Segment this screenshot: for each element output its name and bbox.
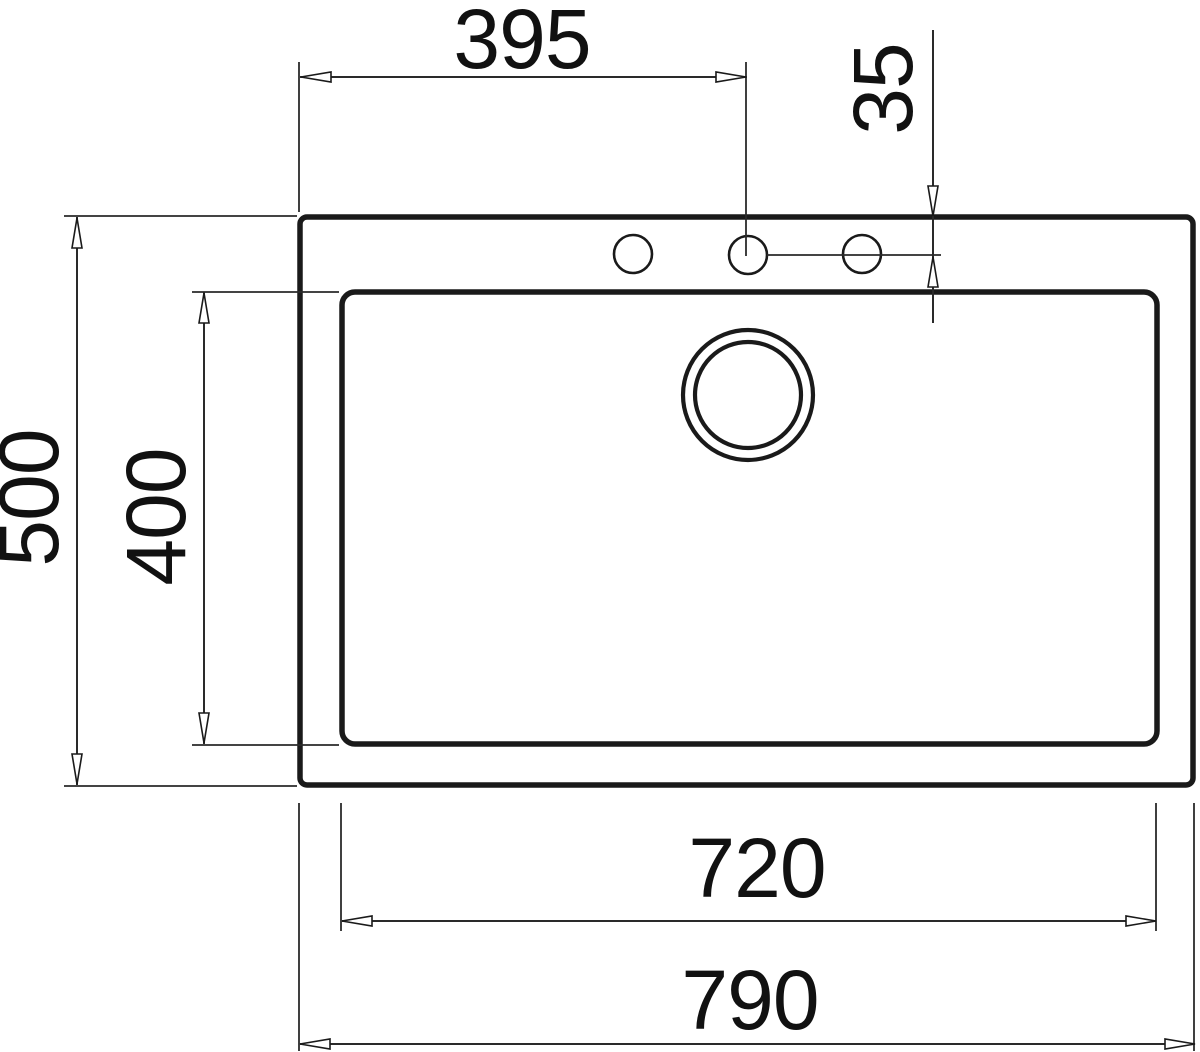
dim-label-500: 500	[0, 429, 76, 566]
arrowhead-500-bottom	[72, 754, 82, 784]
sink-dimension-drawing: 395 35 500 400 720 790	[0, 0, 1200, 1052]
arrowhead-790-right	[1165, 1039, 1195, 1049]
arrowhead-720-right	[1126, 916, 1156, 926]
faucet-hole-center	[729, 236, 767, 274]
arrowhead-500-top	[72, 218, 82, 248]
dim-label-35: 35	[836, 43, 930, 134]
arrowhead-790-left	[300, 1039, 330, 1049]
dim-label-790: 790	[681, 953, 818, 1047]
faucet-hole-left	[614, 235, 652, 273]
sink-rim-outline	[300, 217, 1193, 785]
arrowhead-395-left	[301, 72, 331, 82]
technical-drawing-canvas: 395 35 500 400 720 790	[0, 0, 1200, 1052]
dim-label-720: 720	[688, 821, 825, 915]
arrowhead-395-right	[716, 72, 746, 82]
arrowhead-720-left	[342, 916, 372, 926]
arrowhead-35-top	[928, 186, 938, 216]
dim-label-400: 400	[109, 448, 203, 585]
arrowhead-400-top	[199, 293, 209, 323]
arrowhead-400-bottom	[199, 713, 209, 743]
dim-label-395: 395	[453, 0, 590, 86]
drain-outer-ring	[683, 330, 813, 460]
faucet-hole-right	[843, 235, 881, 273]
